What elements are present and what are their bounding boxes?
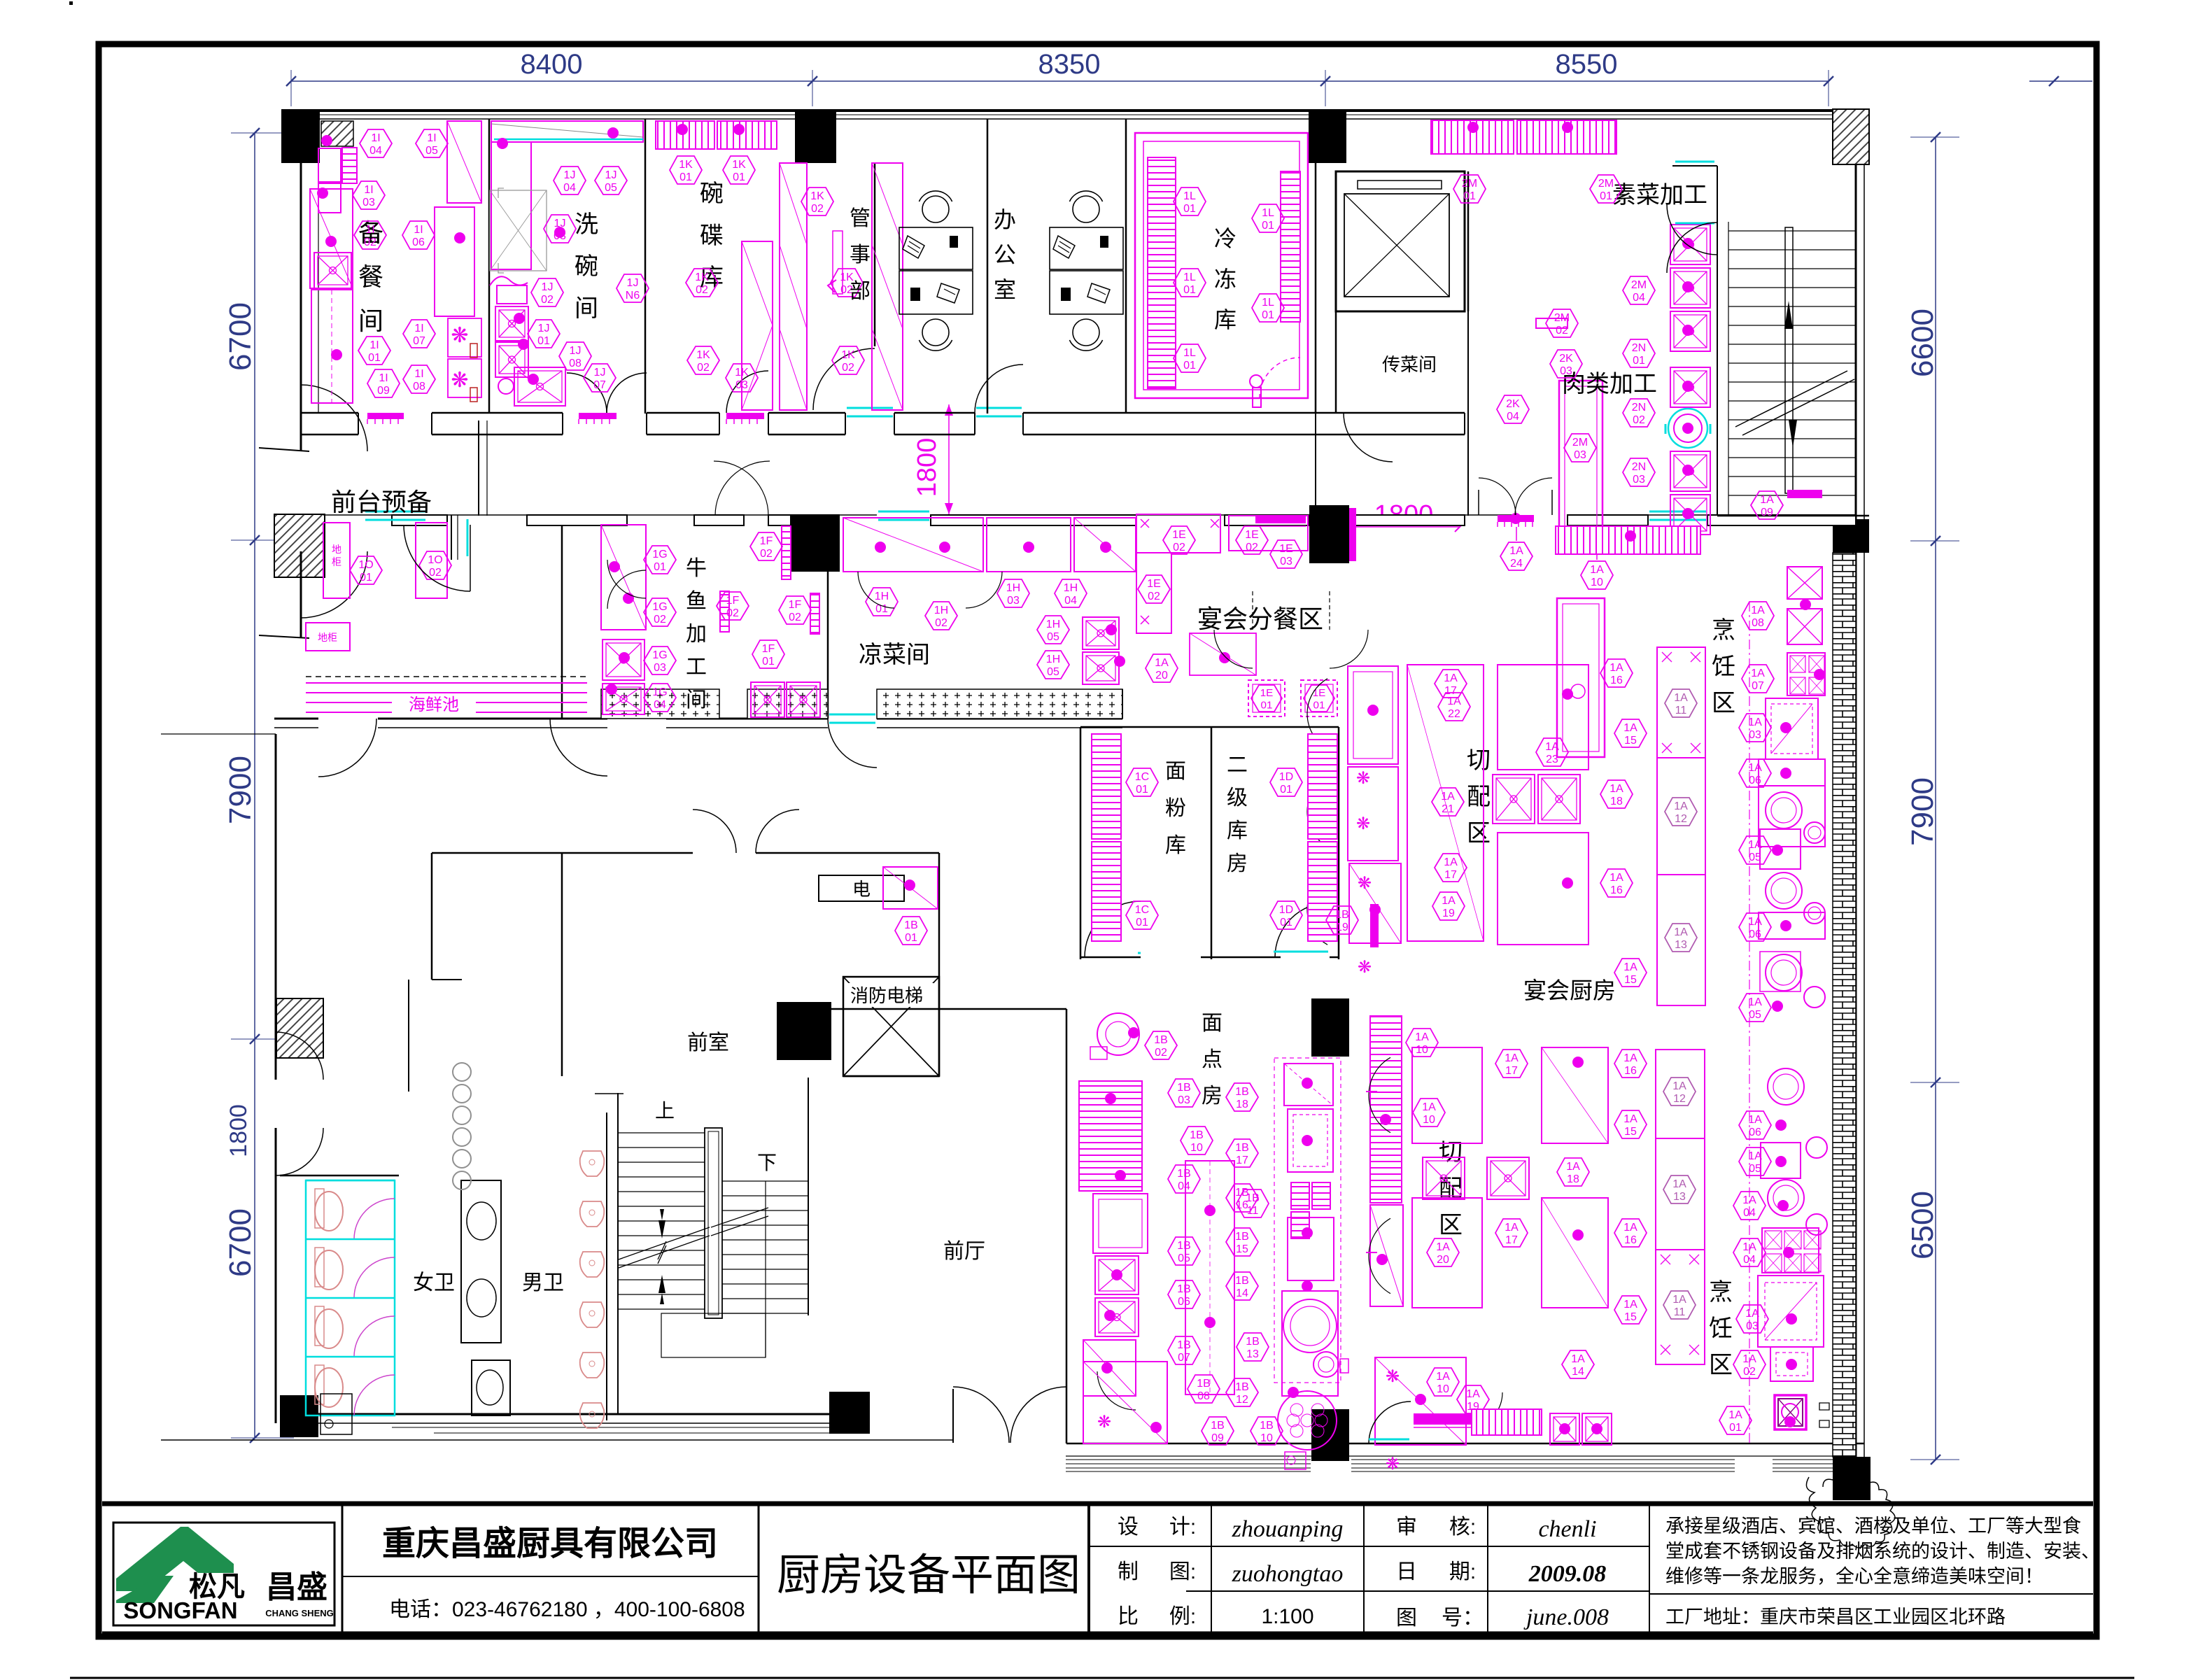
svg-text:1A: 1A: [1609, 783, 1623, 795]
svg-text:碟: 碟: [700, 223, 724, 249]
svg-text:01: 01: [875, 603, 888, 615]
svg-text:事: 事: [850, 243, 871, 267]
svg-text:1A: 1A: [1623, 1299, 1637, 1311]
svg-text:chenli: chenli: [1538, 1516, 1596, 1542]
svg-text:前室: 前室: [687, 1031, 729, 1054]
svg-text:CHANG SHENG: CHANG SHENG: [265, 1608, 334, 1618]
svg-text:6600: 6600: [1905, 309, 1940, 377]
svg-text:june.008: june.008: [1523, 1604, 1609, 1630]
svg-text:维修等一条龙服务，全心全意缔造美味空间！: 维修等一条龙服务，全心全意缔造美味空间！: [1665, 1566, 2043, 1587]
svg-text:1A: 1A: [1509, 545, 1523, 557]
svg-text:20: 20: [1155, 670, 1168, 682]
svg-text:01: 01: [1261, 699, 1273, 711]
svg-text:1I: 1I: [365, 224, 374, 236]
svg-text:❋: ❋: [1358, 874, 1372, 893]
svg-text:10: 10: [1416, 1044, 1428, 1056]
svg-text:鱼: 鱼: [686, 590, 707, 613]
svg-text:1A: 1A: [1742, 1353, 1756, 1365]
svg-text:01: 01: [1136, 784, 1148, 796]
svg-text:1J: 1J: [627, 277, 639, 289]
svg-text:02: 02: [364, 237, 376, 248]
svg-text:01: 01: [679, 171, 692, 183]
svg-text:地柜: 地柜: [318, 632, 337, 643]
svg-text:1C: 1C: [1135, 771, 1149, 783]
svg-text:15: 15: [1624, 1126, 1637, 1138]
svg-text:❋: ❋: [451, 369, 468, 392]
svg-text:06: 06: [1749, 1127, 1761, 1138]
svg-text:12: 12: [1673, 1093, 1686, 1105]
svg-text:01: 01: [1280, 784, 1292, 796]
svg-text:N6: N6: [626, 290, 640, 302]
svg-text:12: 12: [1236, 1394, 1248, 1406]
svg-text:05: 05: [605, 182, 617, 194]
svg-text:02: 02: [1173, 542, 1185, 553]
svg-text:1I: 1I: [414, 323, 423, 334]
svg-text:昌盛: 昌盛: [266, 1570, 327, 1604]
svg-text:间: 间: [575, 295, 598, 322]
svg-text:间: 间: [686, 689, 707, 712]
svg-text:1B: 1B: [1235, 1275, 1249, 1287]
svg-text:1B: 1B: [1154, 1034, 1168, 1046]
svg-text:02: 02: [541, 294, 554, 306]
svg-text:1A: 1A: [1609, 872, 1623, 884]
svg-text:14: 14: [1236, 1287, 1248, 1299]
svg-text:04: 04: [1633, 292, 1645, 304]
svg-text:01: 01: [1262, 220, 1274, 232]
svg-text:1H: 1H: [1046, 654, 1060, 665]
svg-text:17: 17: [1444, 869, 1457, 881]
svg-text:1B: 1B: [904, 919, 918, 931]
svg-text:03: 03: [1749, 729, 1761, 741]
svg-text:餐: 餐: [358, 262, 383, 291]
svg-text:02: 02: [654, 614, 666, 626]
svg-text:1A: 1A: [1623, 1113, 1637, 1125]
svg-text:02: 02: [789, 612, 801, 623]
svg-text:制: 制: [1118, 1560, 1139, 1583]
svg-text:02: 02: [842, 362, 854, 374]
svg-text:13: 13: [1675, 939, 1687, 951]
svg-text:重庆昌盛厨具有限公司: 重庆昌盛厨具有限公司: [382, 1525, 718, 1562]
svg-text:14: 14: [1572, 1366, 1584, 1378]
svg-text:切: 切: [1467, 747, 1491, 774]
svg-text:1A: 1A: [1748, 1114, 1762, 1126]
svg-text:03: 03: [735, 379, 748, 391]
svg-text:19: 19: [1442, 908, 1455, 919]
svg-text:饪: 饪: [1712, 654, 1735, 680]
svg-text:厨房设备平面图: 厨房设备平面图: [777, 1551, 1080, 1600]
svg-text:1K: 1K: [841, 349, 855, 361]
svg-text:02: 02: [696, 284, 708, 296]
svg-text:1K: 1K: [695, 271, 709, 283]
svg-text:02: 02: [1743, 1366, 1756, 1378]
svg-text:1B: 1B: [1235, 1142, 1249, 1154]
svg-text:03: 03: [362, 197, 375, 209]
svg-text:24: 24: [1510, 558, 1523, 570]
svg-text:17: 17: [1236, 1155, 1248, 1166]
svg-text:库: 库: [1214, 307, 1237, 332]
svg-text:1800: 1800: [225, 1104, 252, 1157]
svg-text:1F: 1F: [726, 595, 740, 607]
svg-text:男卫: 男卫: [522, 1271, 564, 1294]
svg-text:1A: 1A: [1748, 916, 1762, 928]
svg-text:工厂地址：重庆市荣昌区工业园区北环路: 工厂地址：重庆市荣昌区工业园区北环路: [1665, 1607, 2006, 1628]
svg-text:07: 07: [593, 379, 606, 391]
svg-text:18: 18: [1236, 1099, 1248, 1110]
svg-text:23: 23: [1546, 754, 1558, 765]
svg-text:1A: 1A: [1623, 1222, 1637, 1234]
svg-text:09: 09: [377, 385, 390, 397]
svg-text:1:100: 1:100: [1261, 1605, 1313, 1628]
svg-text:1L: 1L: [1262, 207, 1274, 219]
svg-text:1E: 1E: [1172, 529, 1186, 541]
svg-text:01: 01: [537, 335, 550, 347]
svg-text:2N: 2N: [1632, 342, 1646, 354]
svg-text:6500: 6500: [1905, 1191, 1940, 1259]
svg-text:10: 10: [1190, 1142, 1203, 1154]
svg-text:1F: 1F: [789, 599, 802, 611]
svg-text:21: 21: [1442, 803, 1454, 815]
svg-text:工: 工: [686, 656, 707, 679]
svg-text:碗: 碗: [700, 181, 724, 207]
svg-text:05: 05: [425, 145, 438, 157]
svg-text:间: 间: [358, 306, 383, 335]
svg-text:7900: 7900: [1905, 777, 1940, 846]
svg-text:1E: 1E: [1147, 578, 1161, 590]
svg-text:2N: 2N: [1632, 461, 1646, 473]
svg-text:18: 18: [1567, 1173, 1579, 1185]
svg-text:09: 09: [1211, 1432, 1224, 1444]
svg-text:02: 02: [760, 548, 773, 560]
svg-text:1B: 1B: [1235, 1381, 1249, 1393]
svg-text:8400: 8400: [521, 49, 583, 80]
svg-text:03: 03: [1633, 474, 1645, 486]
svg-text:16: 16: [1610, 675, 1623, 686]
svg-text:8550: 8550: [1556, 49, 1618, 80]
svg-text:1B: 1B: [1235, 1086, 1249, 1098]
svg-text:公: 公: [994, 242, 1016, 267]
svg-text:1D: 1D: [1279, 771, 1293, 783]
svg-text:12: 12: [1675, 813, 1687, 825]
svg-text:05: 05: [1047, 631, 1059, 643]
svg-text:管: 管: [850, 207, 871, 230]
svg-text:1A: 1A: [1674, 692, 1688, 704]
svg-text:1J: 1J: [594, 367, 606, 379]
svg-text:10: 10: [1437, 1383, 1449, 1395]
svg-text:1I: 1I: [371, 132, 380, 144]
svg-text:1I: 1I: [369, 339, 379, 351]
svg-text:素菜加工: 素菜加工: [1612, 182, 1707, 209]
svg-text:1G: 1G: [652, 686, 667, 698]
svg-text:1I: 1I: [414, 224, 423, 236]
svg-text:01: 01: [1183, 203, 1196, 215]
svg-text:2M: 2M: [1598, 178, 1614, 190]
svg-text:审: 审: [1396, 1516, 1417, 1539]
svg-text:办: 办: [994, 207, 1016, 232]
svg-text:女卫: 女卫: [413, 1271, 455, 1294]
svg-text:1A: 1A: [1441, 791, 1455, 803]
svg-text:1A: 1A: [1623, 1052, 1637, 1064]
svg-text:期:: 期:: [1449, 1560, 1476, 1583]
svg-text:1E: 1E: [1245, 529, 1259, 541]
svg-text:13: 13: [1673, 1191, 1686, 1203]
svg-text:级: 级: [1227, 786, 1248, 810]
svg-text:01: 01: [360, 572, 372, 584]
svg-text:洗: 洗: [575, 211, 598, 238]
svg-text:比: 比: [1118, 1605, 1139, 1628]
svg-text:1A: 1A: [1748, 839, 1762, 851]
svg-text:1G: 1G: [652, 649, 667, 661]
svg-text:2K: 2K: [1559, 353, 1573, 365]
svg-text:面: 面: [1165, 760, 1186, 783]
svg-text:1A: 1A: [1748, 762, 1762, 774]
svg-text:烹: 烹: [1709, 1279, 1733, 1306]
svg-text:区: 区: [1467, 820, 1491, 847]
svg-text:粉: 粉: [1165, 797, 1186, 820]
svg-text:02: 02: [1246, 542, 1258, 553]
svg-text:1L: 1L: [1183, 347, 1196, 359]
svg-text:❋: ❋: [1386, 1367, 1400, 1386]
svg-text:1A: 1A: [1505, 1052, 1519, 1064]
svg-text:前厅: 前厅: [943, 1240, 985, 1263]
svg-text:1B: 1B: [1190, 1129, 1204, 1141]
svg-text:03: 03: [654, 662, 666, 674]
svg-text:01: 01: [1313, 699, 1325, 711]
svg-text:05: 05: [1749, 1163, 1761, 1175]
svg-text:19: 19: [1336, 922, 1348, 933]
svg-text:2M: 2M: [1572, 437, 1588, 449]
svg-text:1H: 1H: [1046, 619, 1060, 630]
svg-text:01: 01: [1136, 917, 1148, 929]
svg-text:zhouanping: zhouanping: [1232, 1516, 1344, 1542]
svg-text:04: 04: [1507, 411, 1519, 423]
svg-text:1C: 1C: [1135, 904, 1149, 916]
svg-text:1A: 1A: [1444, 856, 1458, 868]
svg-text:16: 16: [1236, 1199, 1248, 1211]
svg-text:2K: 2K: [1506, 398, 1520, 410]
svg-text:20: 20: [1437, 1254, 1449, 1266]
svg-text:b: b: [1314, 126, 1323, 143]
svg-text:2M: 2M: [1462, 178, 1477, 190]
svg-text:01: 01: [654, 561, 666, 573]
svg-text:04: 04: [369, 145, 382, 157]
svg-text:面: 面: [1202, 1012, 1223, 1035]
svg-text:例:: 例:: [1169, 1605, 1196, 1628]
svg-text:15: 15: [1624, 1311, 1637, 1323]
svg-text:01: 01: [762, 656, 775, 668]
svg-text:计:: 计:: [1169, 1516, 1196, 1539]
svg-text:1B: 1B: [1335, 909, 1349, 921]
svg-text:1B: 1B: [1177, 1168, 1191, 1180]
svg-text:1A: 1A: [1566, 1161, 1580, 1173]
svg-text:1A: 1A: [1748, 996, 1762, 1008]
svg-text:02: 02: [1148, 591, 1160, 602]
svg-text:室: 室: [994, 277, 1016, 302]
svg-text:部: 部: [850, 280, 871, 303]
svg-text:1A: 1A: [1545, 741, 1559, 753]
svg-text:配: 配: [1467, 784, 1491, 810]
svg-text:日: 日: [1396, 1560, 1417, 1583]
svg-text:电话：023-46762180 ，400-100-6808: 电话：023-46762180 ，400-100-6808: [389, 1598, 745, 1621]
svg-text:05: 05: [1749, 1009, 1761, 1021]
svg-text:地: 地: [332, 544, 341, 555]
svg-text:16: 16: [1624, 1065, 1637, 1077]
svg-text:1B: 1B: [1177, 1082, 1191, 1094]
svg-text:04: 04: [1178, 1180, 1190, 1192]
svg-text:1A: 1A: [1672, 1178, 1686, 1190]
svg-text:03: 03: [1178, 1094, 1190, 1106]
svg-text:04: 04: [1064, 595, 1077, 607]
svg-text:凉菜间: 凉菜间: [859, 642, 930, 668]
svg-text:02: 02: [1556, 325, 1568, 337]
svg-text:号：: 号：: [1442, 1607, 1484, 1630]
svg-text:15: 15: [1236, 1243, 1248, 1255]
svg-text:❋: ❋: [1356, 814, 1370, 833]
svg-text:01: 01: [733, 171, 745, 183]
svg-text:01: 01: [1633, 355, 1645, 367]
svg-text:02: 02: [1633, 414, 1645, 426]
svg-text:7900: 7900: [223, 756, 258, 824]
svg-text:1A: 1A: [1155, 657, 1169, 669]
svg-text:1O: 1O: [358, 559, 373, 571]
svg-text:11: 11: [1674, 1306, 1686, 1318]
svg-text:1J: 1J: [554, 218, 566, 230]
svg-text:前台预备: 前台预备: [331, 488, 432, 516]
svg-text:09: 09: [1761, 507, 1773, 518]
svg-text:16: 16: [1624, 1234, 1637, 1246]
svg-text:06: 06: [1178, 1296, 1190, 1308]
svg-text:10: 10: [1260, 1432, 1273, 1444]
svg-text:碗: 碗: [575, 253, 598, 280]
svg-text:1A: 1A: [1672, 1294, 1686, 1306]
svg-text:1A: 1A: [1415, 1031, 1429, 1043]
svg-text:17: 17: [1505, 1065, 1518, 1077]
svg-text:宴会分餐区: 宴会分餐区: [1197, 605, 1323, 633]
svg-text:1I: 1I: [379, 372, 388, 384]
svg-text:08: 08: [413, 381, 425, 393]
svg-text:1I: 1I: [364, 184, 373, 196]
svg-text:1A: 1A: [1728, 1409, 1742, 1421]
svg-text:18: 18: [1610, 796, 1623, 807]
svg-text:1A: 1A: [1466, 1388, 1480, 1400]
svg-text:02: 02: [811, 203, 824, 215]
svg-text:1A: 1A: [1505, 1222, 1519, 1234]
svg-text:1E: 1E: [1313, 687, 1326, 699]
svg-text:1K: 1K: [735, 367, 749, 379]
svg-text:1J: 1J: [605, 169, 617, 181]
svg-text:07: 07: [1178, 1352, 1190, 1364]
svg-text:1A: 1A: [1444, 672, 1458, 684]
svg-text:1A: 1A: [1436, 1371, 1450, 1383]
svg-text:1A: 1A: [1751, 668, 1765, 679]
svg-text:1B: 1B: [1177, 1240, 1191, 1252]
svg-text:1B: 1B: [1177, 1339, 1191, 1351]
svg-text:1H: 1H: [934, 605, 948, 616]
svg-text:04: 04: [1743, 1207, 1756, 1219]
svg-text:08: 08: [569, 358, 582, 369]
svg-text:1A: 1A: [1609, 662, 1623, 674]
svg-text:柜: 柜: [332, 556, 341, 567]
svg-text:01: 01: [1729, 1422, 1742, 1434]
svg-text:1L: 1L: [1183, 271, 1196, 283]
svg-text:区: 区: [1709, 1352, 1733, 1378]
svg-text:1A: 1A: [1742, 1241, 1756, 1253]
svg-text:库: 库: [1227, 819, 1248, 842]
svg-text:1A: 1A: [1742, 1194, 1756, 1206]
svg-text:03: 03: [1007, 595, 1020, 607]
svg-text:02: 02: [697, 362, 710, 374]
svg-text:冷: 冷: [1214, 226, 1237, 251]
svg-text:1A: 1A: [1623, 961, 1637, 973]
svg-text:1K: 1K: [732, 159, 746, 171]
svg-text:16: 16: [1610, 884, 1623, 896]
svg-text:1A: 1A: [1672, 1080, 1686, 1092]
svg-text:点: 点: [1202, 1048, 1223, 1071]
svg-text:加: 加: [686, 623, 707, 646]
svg-text:1G: 1G: [652, 549, 667, 560]
svg-text:1A: 1A: [1590, 564, 1604, 576]
svg-text:核:: 核:: [1449, 1516, 1476, 1539]
svg-text:01: 01: [905, 932, 917, 944]
svg-text:04: 04: [563, 182, 576, 194]
svg-text:01: 01: [1262, 309, 1274, 321]
svg-text:1K: 1K: [696, 349, 710, 361]
svg-text:6700: 6700: [223, 1208, 258, 1277]
svg-text:承接星级酒店、宾馆、酒楼及单位、工厂等大型食: 承接星级酒店、宾馆、酒楼及单位、工厂等大型食: [1665, 1516, 2081, 1537]
svg-text:图: 图: [1396, 1607, 1417, 1630]
svg-text:传菜间: 传菜间: [1382, 354, 1437, 375]
svg-text:1J: 1J: [564, 169, 576, 181]
svg-text:01: 01: [1463, 190, 1476, 202]
svg-text:1800: 1800: [913, 438, 942, 497]
svg-text:04: 04: [654, 699, 666, 711]
svg-text:03: 03: [1746, 1320, 1759, 1332]
svg-text:上: 上: [655, 1100, 675, 1122]
svg-text:1A: 1A: [1436, 1241, 1450, 1253]
svg-text:1K: 1K: [679, 159, 693, 171]
svg-text:15: 15: [1624, 735, 1637, 747]
svg-text:1A: 1A: [1571, 1353, 1585, 1365]
svg-text:03: 03: [1560, 365, 1572, 377]
svg-text:03: 03: [1574, 449, 1586, 461]
svg-text:06: 06: [1749, 929, 1761, 940]
svg-text:库: 库: [1165, 834, 1186, 857]
svg-text:1H: 1H: [1006, 582, 1020, 594]
svg-text:08: 08: [1197, 1390, 1210, 1402]
svg-text:下: 下: [757, 1152, 777, 1173]
svg-text:❋: ❋: [451, 324, 468, 347]
svg-text:1B: 1B: [1235, 1187, 1249, 1199]
svg-text:区: 区: [1712, 690, 1735, 717]
svg-text:1E: 1E: [1279, 543, 1293, 555]
svg-text:❋: ❋: [1097, 1413, 1111, 1432]
svg-text:06: 06: [1749, 775, 1761, 786]
svg-text:05: 05: [1047, 666, 1059, 678]
svg-text:SONGFAN: SONGFAN: [123, 1597, 237, 1623]
svg-text:11: 11: [1675, 705, 1687, 717]
svg-text:冻: 冻: [1214, 267, 1237, 292]
svg-text:1B: 1B: [1197, 1378, 1211, 1390]
svg-text:1K: 1K: [810, 190, 824, 202]
svg-text:1B: 1B: [1246, 1336, 1260, 1348]
svg-text:1B: 1B: [1211, 1420, 1225, 1432]
svg-text:电: 电: [852, 879, 871, 900]
svg-text:2009.08: 2009.08: [1528, 1561, 1607, 1587]
svg-text:1A: 1A: [1745, 1308, 1759, 1320]
svg-text:06: 06: [412, 237, 425, 248]
svg-text:07: 07: [413, 335, 425, 347]
svg-text:区: 区: [1439, 1212, 1463, 1238]
svg-text:05: 05: [1749, 852, 1761, 863]
